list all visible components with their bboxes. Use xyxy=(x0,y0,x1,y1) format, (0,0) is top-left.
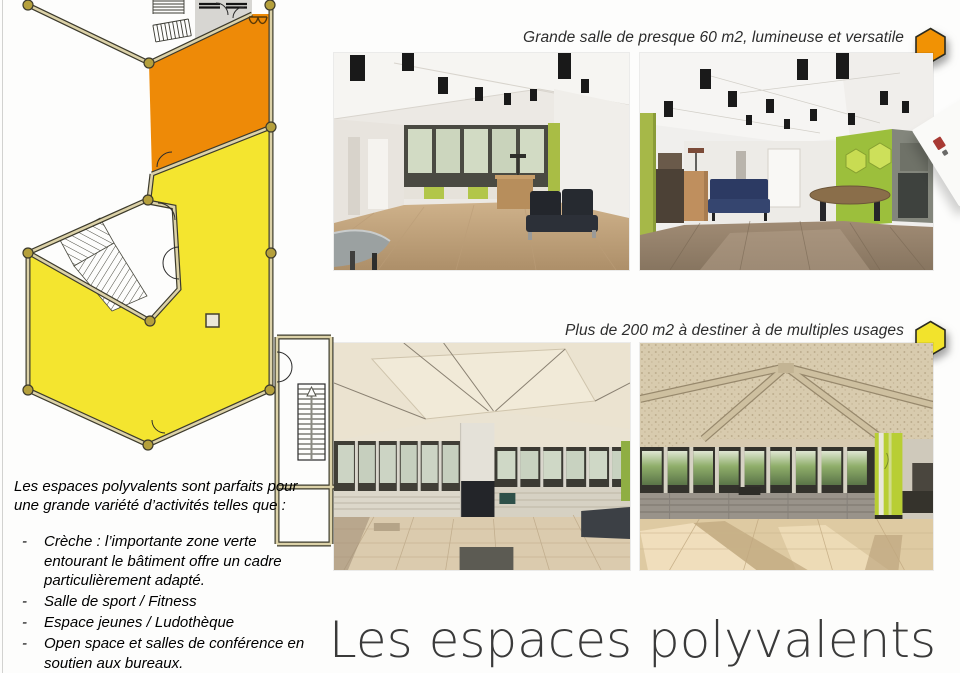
window-band-left xyxy=(334,441,462,491)
description-item: Open space et salles de conférence en so… xyxy=(14,634,314,672)
photo-grand-espace-1-image xyxy=(334,343,630,570)
plan-top-stairs xyxy=(153,0,191,42)
photo-grande-salle-1-image xyxy=(334,53,629,270)
desk-silhouette xyxy=(581,507,630,539)
photo-grand-espace-1 xyxy=(334,343,630,570)
page-title: Les espaces polyvalents xyxy=(329,611,936,669)
description-intro: Les espaces polyvalents sont parfaits po… xyxy=(14,477,314,515)
description-item: Crèche : l’importante zone verte entoura… xyxy=(14,532,314,590)
logo-emblem-dot-icon xyxy=(942,149,949,156)
photo-grande-salle-1 xyxy=(334,53,629,270)
window-band-right xyxy=(493,447,630,487)
floor-plan xyxy=(0,0,336,548)
description-list: Crèche : l’importante zone verte entoura… xyxy=(14,532,314,672)
window-band xyxy=(640,447,875,493)
description-item: Salle de sport / Fitness xyxy=(14,592,314,611)
plan-corridor-stairs xyxy=(298,384,325,460)
photo-grand-espace-2-image xyxy=(640,343,933,570)
description-item: Espace jeunes / Ludothèque xyxy=(14,613,314,632)
floor xyxy=(640,221,933,270)
door xyxy=(768,149,800,207)
photo-grande-salle-2 xyxy=(640,53,933,270)
description-block: Les espaces polyvalents sont parfaits po… xyxy=(14,477,314,673)
logo-emblem-icon xyxy=(933,136,946,150)
caption-grande-salle-text: Grande salle de presque 60 m2, lumineuse… xyxy=(523,27,904,49)
window-band xyxy=(404,123,560,199)
plan-column xyxy=(206,314,219,327)
photo-grand-espace-2 xyxy=(640,343,933,570)
photo-grande-salle-2-image xyxy=(640,53,933,270)
green-wall-hexagons xyxy=(836,129,892,227)
caption-grand-espace-text: Plus de 200 m2 à destiner à de multiples… xyxy=(565,320,904,342)
brochure-page: Grande salle de presque 60 m2, lumineuse… xyxy=(0,0,960,673)
floor xyxy=(640,519,933,570)
